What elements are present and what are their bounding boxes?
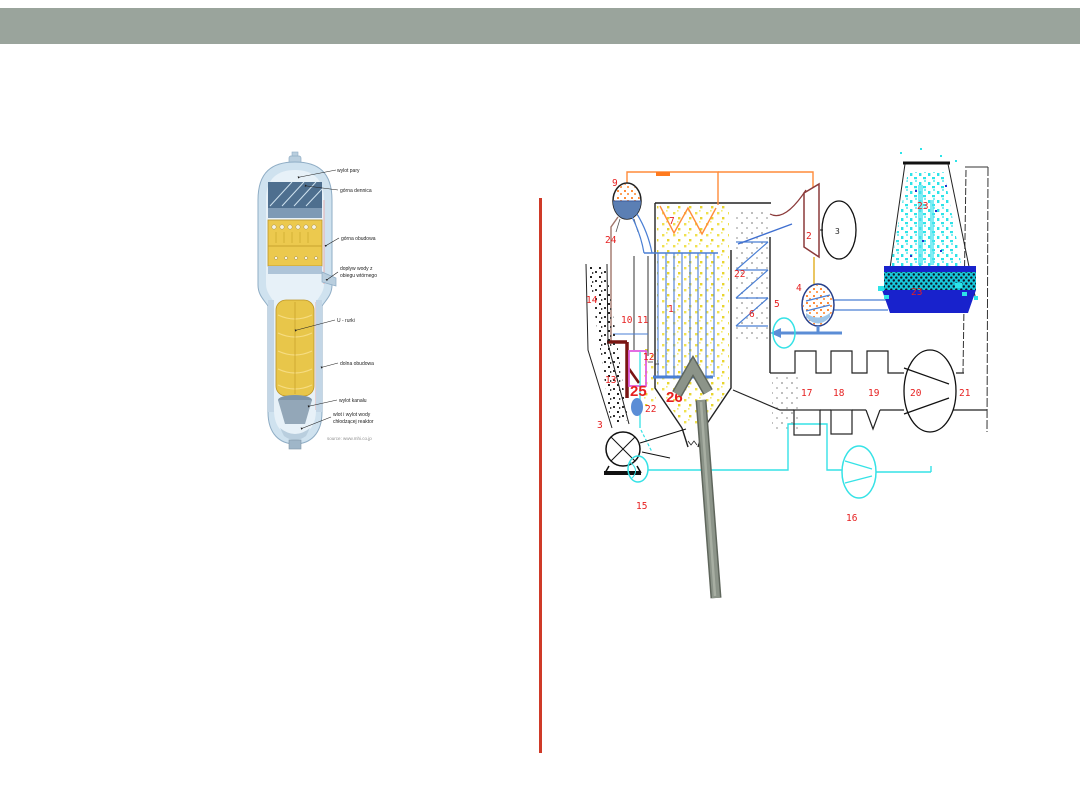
- diagram-number-15: 15: [636, 501, 647, 512]
- diagram-number-23-tower-basin: 23: [911, 287, 922, 298]
- diagram-number-14: 14: [586, 295, 598, 306]
- diagram-number-2: 2: [806, 231, 812, 242]
- diagram-number-10: 10: [621, 315, 633, 326]
- diagram-number-19: 19: [868, 388, 880, 399]
- label-dolna-obudowa: dolna obudowa: [340, 361, 374, 367]
- diagram-number-18: 18: [833, 388, 845, 399]
- cooling-tower: [878, 148, 978, 313]
- label-doplyw-wody-2: obiegu wtórnego: [340, 273, 377, 279]
- steam-generator-figure: wylot pary górna dennica górna obudowa d…: [240, 150, 420, 450]
- turbine-inlet-pipe: [770, 190, 806, 216]
- diagram-number-20: 20: [910, 388, 922, 399]
- power-plant-diagram: 3: [555, 145, 1000, 610]
- steam-generator-vessel: [258, 152, 336, 449]
- label-gorna-obudowa: górna obudowa: [341, 236, 376, 242]
- diagram-number-17: 17: [801, 388, 812, 399]
- diagram-number-4: 4: [796, 283, 802, 294]
- steam-drum: [613, 183, 641, 232]
- downcomer-pipes: [611, 214, 652, 356]
- diagram-number-21: 21: [959, 388, 971, 399]
- diagram-number-25: 25: [630, 383, 647, 400]
- coal-chute: [586, 264, 629, 428]
- diagram-number-6: 6: [749, 309, 755, 320]
- diagram-number-22-economizer: 22: [734, 269, 745, 280]
- diagram-number-9: 9: [612, 178, 618, 189]
- diagram-number-12: 12: [643, 352, 654, 363]
- diagram-number-22-water: 22: [645, 404, 656, 415]
- diagram-number-3-fan: 3: [597, 420, 603, 431]
- mill-fan: [604, 429, 686, 473]
- diagram-number-5: 5: [774, 299, 780, 310]
- furnace-flames: [643, 205, 729, 425]
- water-pocket: [631, 398, 643, 416]
- diagram-number-24: 24: [605, 235, 617, 246]
- label-wylot-kanalu: wylot kanału: [339, 398, 367, 404]
- steam-turbine: [804, 184, 819, 257]
- diagram-number-3-generator: 3: [835, 227, 840, 236]
- diagram-number-13: 13: [605, 375, 616, 386]
- condenser: [802, 284, 888, 327]
- feedwater-arrow: [770, 318, 842, 348]
- label-wlot-1: wlot i wylot wody: [333, 412, 371, 418]
- steam-generator-labels: wylot pary górna dennica górna obudowa d…: [327, 168, 377, 441]
- slide-header-bar: [0, 8, 1080, 44]
- diagram-number-1: 1: [668, 304, 674, 315]
- label-u-rurki: U - rurki: [337, 318, 355, 324]
- vertical-separator-line: [539, 198, 542, 753]
- label-doplyw-wody-1: dopływ wody z: [340, 266, 373, 272]
- label-wylot-pary: wylot pary: [337, 168, 360, 174]
- label-wlot-2: chłodzącej reaktor: [333, 419, 374, 425]
- diagram-number-23-tower-top: 23: [917, 201, 928, 212]
- generator: 3: [822, 201, 856, 259]
- diagram-number-16: 16: [846, 513, 858, 524]
- label-gorna-dennica: górna dennica: [340, 188, 372, 194]
- label-source: source: www.mhi.co.jp: [327, 436, 372, 441]
- cooling-water-pump: [842, 446, 876, 498]
- diagram-number-7: 7: [669, 216, 675, 227]
- diagram-number-11: 11: [637, 315, 649, 326]
- flue-gas-speckles: [733, 210, 798, 432]
